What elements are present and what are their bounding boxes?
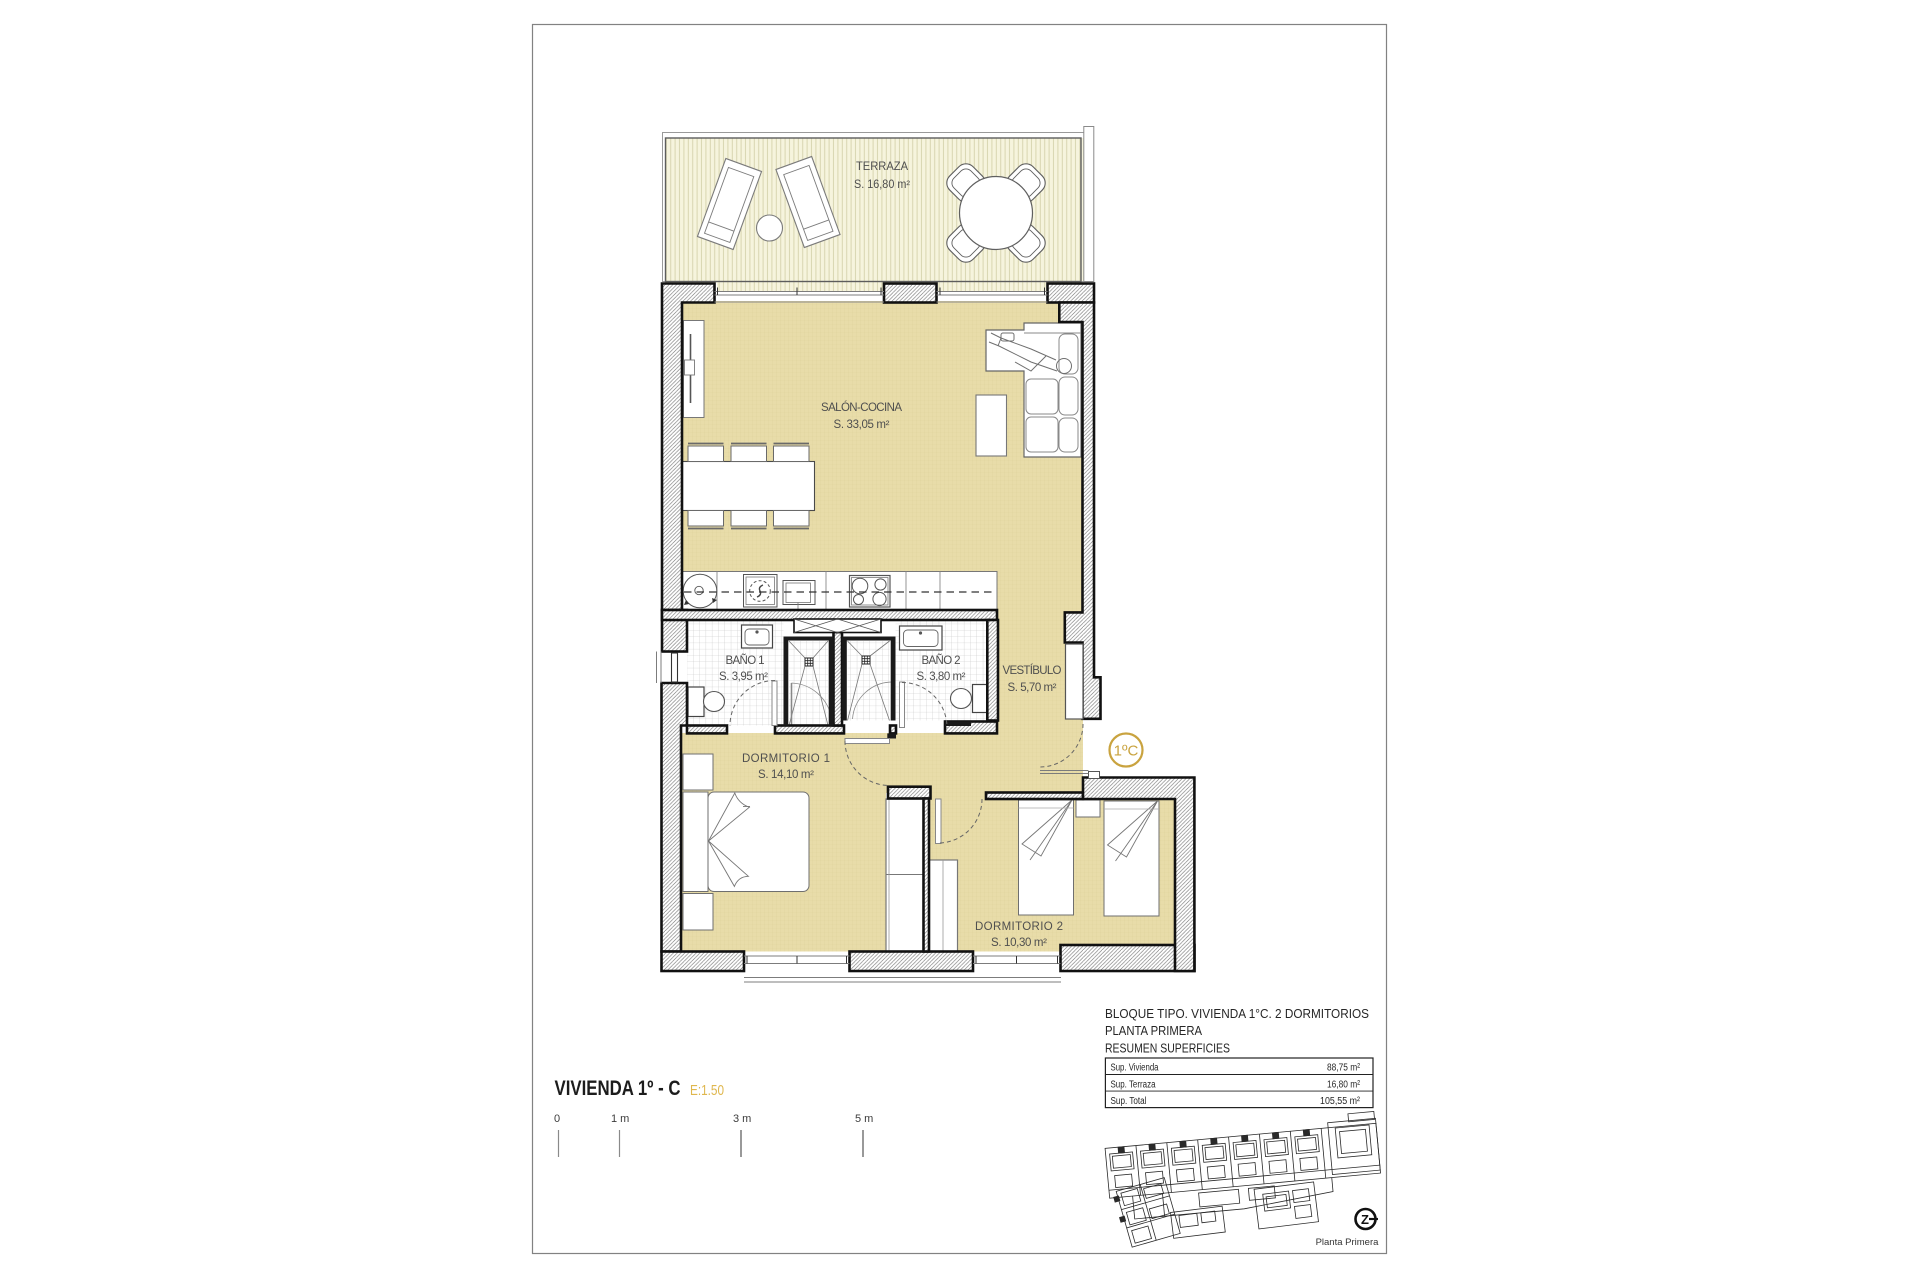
svg-text:S. 3,95 m²: S. 3,95 m²	[719, 671, 768, 683]
svg-text:Z: Z	[1361, 1212, 1369, 1227]
svg-text:SALÓN-COCINA: SALÓN-COCINA	[821, 401, 902, 414]
svg-text:Sup. Vivienda: Sup. Vivienda	[1111, 1063, 1159, 1074]
svg-text:DORMITORIO 2: DORMITORIO 2	[975, 921, 1063, 933]
svg-text:0: 0	[554, 1113, 560, 1125]
svg-text:3 m: 3 m	[733, 1113, 751, 1125]
svg-text:BAÑO 2: BAÑO 2	[922, 654, 961, 667]
svg-text:VESTÍBULO: VESTÍBULO	[1003, 664, 1062, 677]
svg-text:RESUMEN SUPERFICIES: RESUMEN SUPERFICIES	[1105, 1041, 1230, 1056]
svg-text:1 m: 1 m	[611, 1113, 629, 1125]
svg-text:S. 5,70 m²: S. 5,70 m²	[1008, 682, 1057, 694]
svg-text:PLANTA PRIMERA: PLANTA PRIMERA	[1105, 1023, 1202, 1038]
svg-text:105,55 m²: 105,55 m²	[1320, 1096, 1361, 1107]
svg-text:S. 14,10 m²: S. 14,10 m²	[758, 769, 814, 781]
svg-text:E:1.50: E:1.50	[690, 1082, 724, 1099]
svg-text:VIVIENDA 1º - C: VIVIENDA 1º - C	[555, 1077, 681, 1100]
svg-text:S. 3,80 m²: S. 3,80 m²	[917, 671, 966, 683]
svg-text:5 m: 5 m	[855, 1113, 873, 1125]
svg-text:Sup. Total: Sup. Total	[1111, 1096, 1147, 1107]
svg-text:BLOQUE TIPO. VIVIENDA 1°C. 2 D: BLOQUE TIPO. VIVIENDA 1°C. 2 DORMITORIOS	[1105, 1006, 1369, 1021]
svg-text:TERRAZA: TERRAZA	[856, 161, 908, 173]
svg-text:DORMITORIO 1: DORMITORIO 1	[742, 753, 830, 765]
svg-text:88,75 m²: 88,75 m²	[1327, 1063, 1361, 1074]
svg-text:Sup. Terraza: Sup. Terraza	[1111, 1080, 1156, 1091]
svg-text:S. 16,80 m²: S. 16,80 m²	[854, 179, 910, 191]
svg-text:S. 33,05 m²: S. 33,05 m²	[834, 419, 890, 431]
svg-text:Planta Primera: Planta Primera	[1316, 1237, 1380, 1248]
svg-text:16,80 m²: 16,80 m²	[1327, 1080, 1361, 1091]
svg-text:S. 10,30 m²: S. 10,30 m²	[991, 937, 1047, 949]
svg-text:1ºC: 1ºC	[1114, 743, 1139, 760]
svg-text:BAÑO 1: BAÑO 1	[726, 654, 765, 667]
